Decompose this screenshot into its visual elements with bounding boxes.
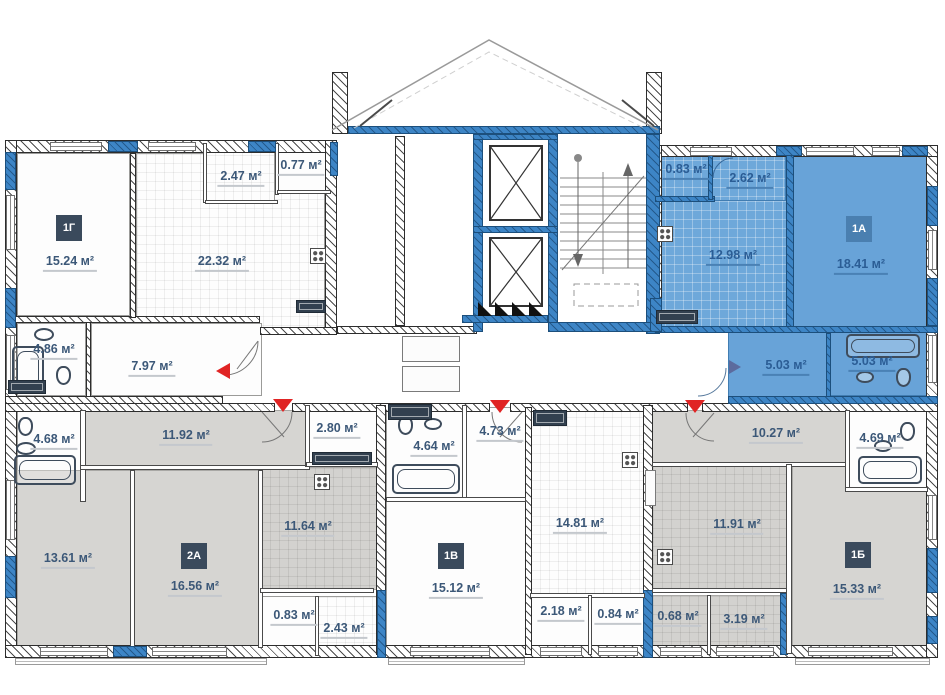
area-label-1A-kitchen: 12.98 м²: [706, 248, 760, 266]
apartment-badge-1G[interactable]: 1Г: [56, 215, 82, 241]
apartment-badge-1A[interactable]: 1А: [846, 216, 872, 242]
entrance-marker-1Б: [685, 400, 705, 413]
area-label-2A-bathroom: 4.68 м²: [30, 432, 77, 450]
area-label-1B-balcony-2: 3.19 м²: [720, 612, 767, 630]
area-label-2A-wc: 2.80 м²: [313, 421, 360, 439]
apartment-badge-1V[interactable]: 1В: [438, 543, 464, 569]
entrance-marker-2А: [273, 399, 293, 412]
area-label-1V-living-room: 15.12 м²: [429, 581, 483, 599]
area-label-1A-balcony-1: 0.83 м²: [662, 162, 709, 180]
area-label-1G-balcony-1: 2.47 м²: [217, 169, 264, 187]
area-label-2A-bedroom: 13.61 м²: [41, 551, 95, 569]
area-label-1G-kitchen: 22.32 м²: [195, 254, 249, 272]
area-label-1B-balcony-1: 0.68 м²: [654, 609, 701, 627]
area-label-2A-living-room: 16.56 м²: [168, 579, 222, 597]
area-label-2A-balcony-2: 2.43 м²: [320, 621, 367, 639]
area-label-1G-living-room: 15.24 м²: [43, 254, 97, 272]
area-label-1A-living-room: 18.41 м²: [834, 257, 888, 275]
area-label-1V-hallway: 4.73 м²: [476, 424, 523, 442]
area-label-1B-bathroom: 4.69 м²: [856, 431, 903, 449]
area-label-1B-hallway: 10.27 м²: [749, 426, 803, 444]
floor-plan: 15.24 м²22.32 м²2.47 м²0.77 м²4.86 м²7.9…: [0, 0, 945, 695]
area-label-1B-kitchen: 11.91 м²: [710, 517, 763, 535]
apartment-badge-2A[interactable]: 2А: [181, 543, 207, 569]
area-label-1G-hallway: 7.97 м²: [128, 359, 175, 377]
area-label-1V-balcony-1: 2.18 м²: [537, 604, 584, 622]
entrance-marker-1В: [490, 400, 510, 413]
apartment-badge-1B[interactable]: 1Б: [845, 542, 871, 568]
area-label-1V-balcony-2: 0.84 м²: [594, 607, 641, 625]
area-label-1A-bathroom: 5.03 м²: [848, 354, 895, 372]
area-label-1G-balcony-2: 0.77 м²: [277, 158, 324, 176]
area-label-2A-balcony-1: 0.83 м²: [270, 608, 317, 626]
area-label-1G-bathroom: 4.86 м²: [30, 342, 77, 360]
area-label-2A-kitchen: 11.64 м²: [281, 519, 334, 537]
entrance-marker-1А: [729, 360, 741, 374]
area-label-2A-hallway: 11.92 м²: [159, 428, 212, 446]
area-label-1A-hallway: 5.03 м²: [762, 358, 809, 376]
labels-layer: 15.24 м²22.32 м²2.47 м²0.77 м²4.86 м²7.9…: [0, 0, 945, 695]
entrance-marker-1Г: [216, 363, 230, 379]
area-label-1V-bathroom: 4.64 м²: [410, 439, 457, 457]
area-label-1V-kitchen: 14.81 м²: [553, 516, 607, 534]
area-label-1B-living-room: 15.33 м²: [830, 582, 884, 600]
area-label-1A-balcony-2: 2.62 м²: [726, 171, 773, 189]
